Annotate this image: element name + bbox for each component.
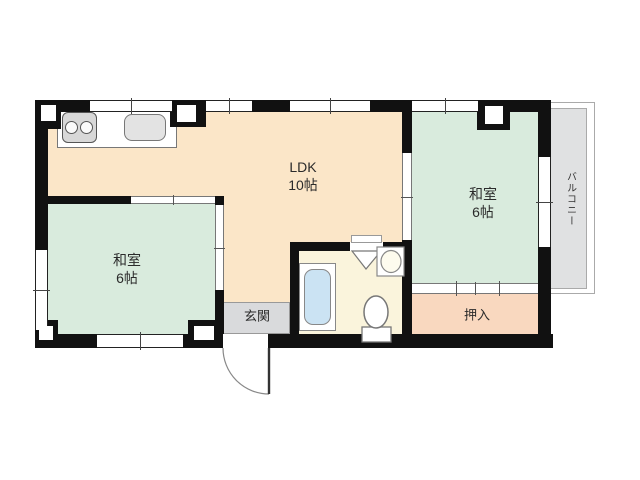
- window-top-washitsu-right: [412, 100, 478, 112]
- washitsu-right-label: 和室 6帖: [469, 186, 497, 222]
- stove-burner-icon: [65, 121, 78, 134]
- pillar-square: [41, 105, 56, 121]
- balcony-label: バルコニー: [563, 172, 578, 227]
- window-top-kitchen: [90, 100, 172, 112]
- washitsu-left-label: 和室 6帖: [113, 252, 141, 288]
- genkan-label: 玄関: [244, 309, 270, 326]
- sliding-door-oshiire: [412, 283, 538, 294]
- window-left-washitsu: [35, 250, 48, 330]
- ldk-size: 10帖: [288, 177, 318, 195]
- pillar-square: [39, 326, 53, 340]
- wall-bath-left: [290, 242, 299, 348]
- bathtub-icon: [304, 269, 331, 325]
- washitsu-right-size: 6帖: [469, 204, 497, 222]
- washitsu-left-size: 6帖: [113, 270, 141, 288]
- washbasin-icon: [376, 246, 406, 278]
- sliding-door-washitsu-left-right: [215, 205, 224, 290]
- toilet-icon: [358, 294, 396, 346]
- entry-door-swing-icon: [221, 346, 273, 396]
- bath-door-icon: [351, 235, 382, 243]
- window-bottom-washitsu: [97, 334, 183, 348]
- pillar-square: [177, 105, 196, 122]
- sliding-door-washitsu-left-top: [131, 196, 215, 204]
- door-tick: [456, 281, 457, 296]
- ldk-label: LDK 10帖: [288, 159, 318, 195]
- pillar-square: [485, 106, 503, 124]
- washitsu-left-name: 和室: [113, 252, 141, 270]
- oshiire-label: 押入: [464, 308, 490, 325]
- door-tick: [499, 281, 500, 296]
- washitsu-right-name: 和室: [469, 186, 497, 204]
- ldk-name: LDK: [288, 159, 318, 177]
- floor-plan: LDK 10帖 和室 6帖 和室 6帖 押入 玄関 バルコニー: [0, 0, 640, 480]
- pillar-square: [194, 326, 214, 340]
- window-top-ldk: [290, 100, 370, 112]
- kitchen-sink-icon: [124, 114, 166, 141]
- sliding-door-ldk-washitsu-right: [402, 153, 412, 240]
- window-top-2: [206, 100, 252, 112]
- window-right-balcony: [538, 157, 551, 247]
- stove-burner-icon: [80, 121, 93, 134]
